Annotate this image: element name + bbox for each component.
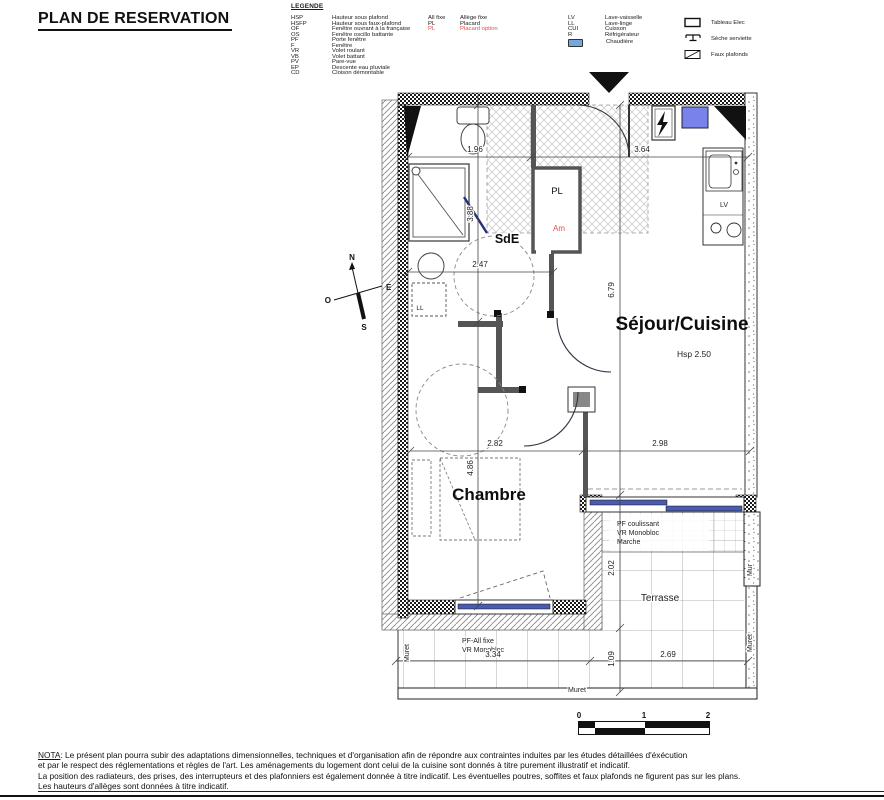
sliding-door-label-1: PF coulissant	[617, 521, 659, 528]
plan-page: PLAN DE RESERVATION LEGENDE HSPHauteur s…	[0, 0, 884, 800]
cooktop-burner	[711, 223, 721, 233]
svg-text:Mur: Mur	[747, 563, 754, 576]
window-label-1: PF-All fixe	[462, 638, 494, 645]
closet-option-label: Am	[553, 224, 565, 233]
svg-text:Muret: Muret	[747, 634, 754, 652]
compass-s: S	[361, 323, 367, 332]
svg-text:1.09: 1.09	[607, 651, 616, 667]
scale-tick-1: 1	[642, 711, 646, 720]
ceiling-height-label: Hsp 2.50	[677, 349, 711, 359]
svg-text:6.79: 6.79	[607, 282, 616, 298]
cooktop-burner	[727, 223, 741, 237]
closet: PL Am	[533, 168, 580, 252]
washbasin-fixture	[418, 253, 444, 279]
nota-line-4: Les hauteurs d'allèges sont données à ti…	[38, 781, 884, 792]
svg-text:2.02: 2.02	[607, 560, 616, 576]
room-label-chambre: Chambre	[452, 485, 526, 504]
closet-label: PL	[551, 186, 563, 197]
sliding-door-label-3: Marche	[617, 539, 640, 546]
svg-text:Muret: Muret	[404, 644, 411, 662]
shower-fixture	[409, 164, 487, 241]
washing-machine-label: LL	[416, 305, 424, 312]
nota-block: NOTA: Le présent plan pourra subir des a…	[0, 750, 884, 792]
dishwasher-label: LV	[720, 202, 728, 209]
compass-e: E	[386, 283, 392, 292]
svg-text:1.96: 1.96	[467, 145, 483, 154]
nota-line-2: et par le respect des réglementations et…	[38, 760, 884, 770]
entrance-arrow-icon	[589, 72, 629, 93]
scale-tick-0: 0	[577, 711, 581, 720]
room-label-sde: SdE	[495, 232, 519, 246]
compass-o: O	[325, 296, 331, 305]
interior-doors	[524, 318, 611, 446]
corner-post	[714, 106, 746, 140]
boiler	[682, 107, 708, 128]
svg-text:3.34: 3.34	[485, 650, 501, 659]
compass-n: N	[349, 253, 355, 262]
scale-bar: 0 1 2	[578, 711, 714, 741]
room-label-sejour: Séjour/Cuisine	[615, 314, 748, 335]
svg-text:3.64: 3.64	[634, 145, 650, 154]
svg-text:2.98: 2.98	[652, 439, 668, 448]
scale-tick-2: 2	[706, 711, 710, 720]
electrical-panel	[652, 106, 675, 140]
nota-line-1: NOTA: Le présent plan pourra subir des a…	[38, 750, 884, 760]
scale-bar-graphic	[578, 721, 710, 735]
nota-line-3: La position des radiateurs, des prises, …	[38, 771, 884, 781]
svg-text:Muret: Muret	[568, 687, 586, 694]
svg-text:2.82: 2.82	[487, 439, 503, 448]
room-label-terrasse: Terrasse	[641, 593, 680, 604]
washing-machine-zone: LL	[412, 283, 446, 316]
svg-text:2.69: 2.69	[660, 650, 676, 659]
sliding-door-label-2: VR Monobloc	[617, 530, 660, 537]
bottom-rule	[0, 795, 884, 797]
svg-text:4.86: 4.86	[466, 460, 475, 476]
svg-text:3.88: 3.88	[466, 206, 475, 222]
floor-plan-svg: PL Am LL	[0, 0, 884, 800]
kitchen-counter: LV	[703, 148, 743, 245]
svg-text:2.47: 2.47	[472, 260, 488, 269]
